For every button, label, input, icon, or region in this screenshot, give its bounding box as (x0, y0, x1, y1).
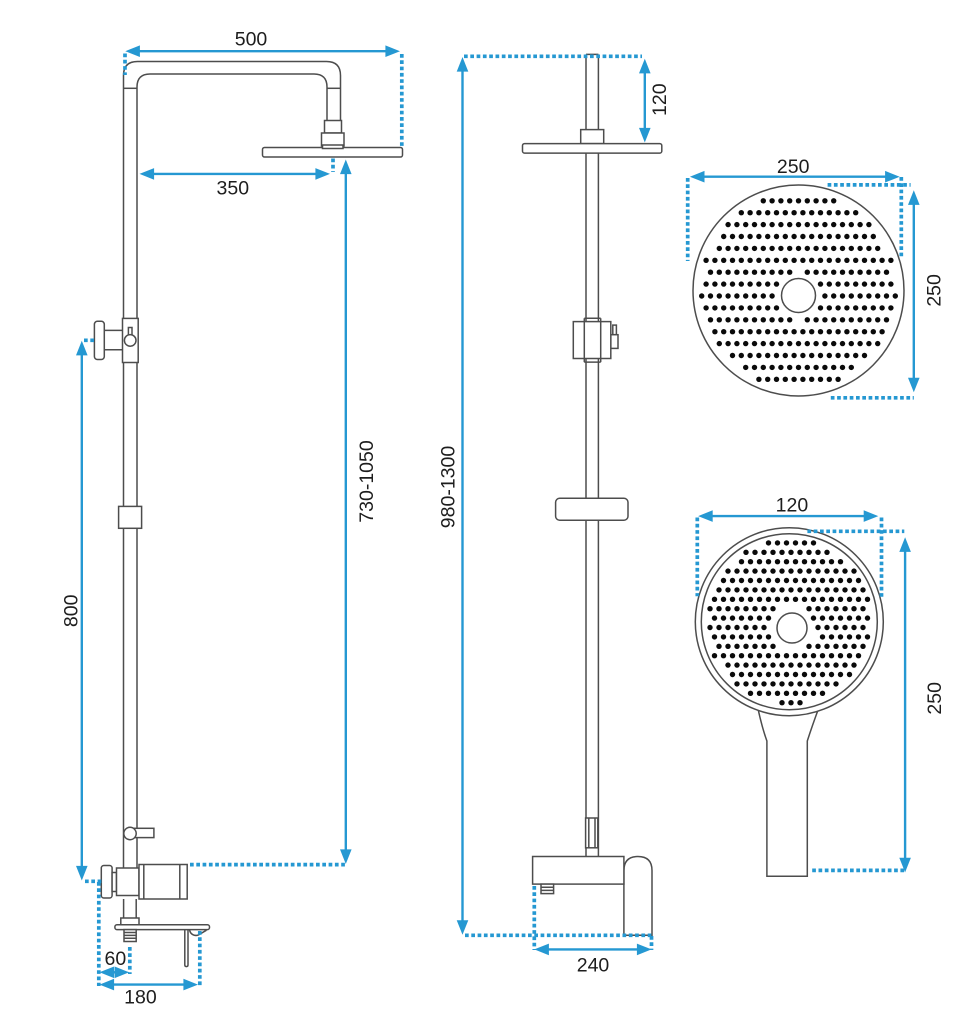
svg-text:250: 250 (924, 274, 946, 307)
svg-text:60: 60 (105, 948, 127, 970)
svg-text:500: 500 (235, 29, 268, 51)
svg-text:250: 250 (777, 156, 810, 178)
svg-text:120: 120 (776, 495, 809, 517)
svg-text:120: 120 (649, 83, 671, 116)
svg-text:730-1050: 730-1050 (356, 440, 378, 523)
svg-text:800: 800 (61, 594, 83, 627)
svg-text:180: 180 (124, 986, 157, 1008)
svg-text:250: 250 (924, 682, 946, 715)
svg-text:980-1300: 980-1300 (438, 446, 460, 529)
svg-text:240: 240 (577, 955, 610, 977)
svg-text:350: 350 (217, 177, 250, 199)
